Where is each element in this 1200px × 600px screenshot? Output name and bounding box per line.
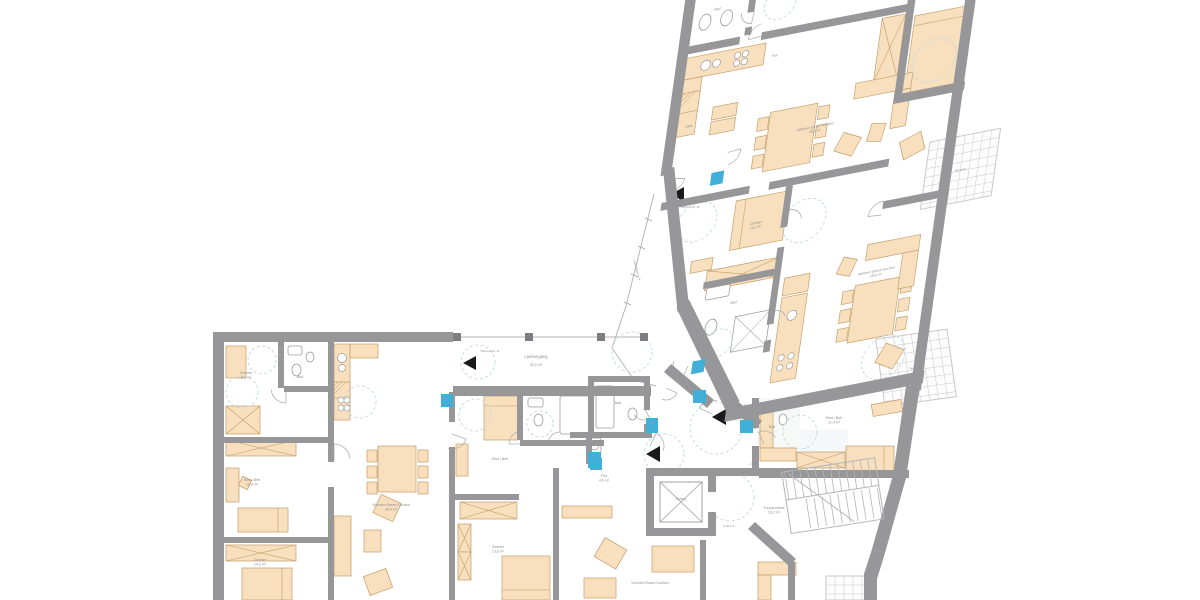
svg-text:Wohnung Nr. 14: Wohnung Nr. 14: [655, 467, 674, 471]
wall: [700, 540, 706, 600]
label: Wohnung Nr. 14: [655, 467, 674, 471]
cabinet: [760, 448, 796, 461]
corridor-post: [525, 333, 533, 341]
wall: [864, 574, 877, 600]
desk: [652, 546, 694, 572]
svg-text:+ 5.74: + 5.74: [749, 462, 758, 466]
chair: [836, 327, 849, 342]
toilet: [306, 352, 314, 362]
chair: [897, 297, 910, 312]
wall: [553, 468, 559, 600]
sink-basin: [338, 354, 347, 363]
stove-burner: [338, 397, 344, 403]
dishwasher: [334, 382, 350, 398]
svg-text:Zimmer13,6 m²: Zimmer13,6 m²: [492, 545, 505, 553]
wall: [328, 487, 334, 600]
svg-text:Zimmer14,2 m²: Zimmer14,2 m²: [254, 558, 267, 566]
chair: [367, 482, 377, 494]
cabinet: [760, 410, 773, 448]
corridor-post: [453, 333, 461, 341]
chair: [367, 466, 377, 478]
floor-plan-page: Zimmer8,2 m²BadKind / Bett12,8 m²Zimmer1…: [0, 0, 1200, 600]
blue: [646, 418, 658, 433]
wall: [328, 392, 334, 462]
toilet: [628, 408, 637, 420]
wall: [224, 537, 330, 543]
wall: [328, 342, 334, 392]
chair: [754, 135, 767, 150]
chair: [812, 142, 825, 157]
bed: [484, 396, 518, 440]
wall: [284, 386, 330, 392]
wall: [453, 386, 651, 396]
chair: [367, 450, 377, 462]
blue: [693, 390, 706, 403]
sink: [288, 346, 302, 355]
svg-text:Bad: Bad: [615, 401, 621, 405]
label: Bad: [297, 375, 303, 379]
bed: [242, 568, 292, 600]
floor-plan-drawing: Zimmer8,2 m²BadKind / Bett12,8 m²Zimmer1…: [0, 0, 1200, 600]
wall: [455, 494, 519, 500]
label: Bad: [769, 425, 775, 429]
chair: [418, 466, 428, 478]
svg-text:Kind / Bett: Kind / Bett: [492, 457, 509, 461]
label: Kind / Bett12,8 m²: [244, 478, 261, 486]
wall: [788, 562, 795, 600]
blue: [441, 394, 453, 407]
chair: [838, 309, 851, 324]
wall: [449, 447, 455, 600]
label: Aufzug: [676, 497, 686, 501]
coffee-table: [364, 530, 381, 552]
label: Kind / Bett: [492, 457, 509, 461]
svg-text:Kind / Bett11,4 m²: Kind / Bett11,4 m²: [826, 416, 843, 424]
label: + 5.74: [749, 462, 758, 466]
cabinet: [458, 524, 471, 552]
label: Wohnen Essen Kochen: [631, 581, 669, 585]
wall: [517, 392, 523, 440]
wall: [588, 376, 650, 382]
toilet: [534, 414, 543, 426]
label: Bad: [615, 401, 621, 405]
sink: [528, 398, 543, 407]
wall: [224, 437, 330, 443]
wardrobe: [460, 502, 517, 519]
stove-burner: [338, 405, 344, 411]
chair: [757, 117, 770, 132]
wall: [213, 332, 453, 342]
wrect: [706, 492, 716, 512]
label: Kind / Bett11,4 m²: [826, 416, 843, 424]
label: Zimmer8,2 m²: [240, 371, 253, 379]
label: Zimmer13,6 m²: [492, 545, 505, 553]
chair: [841, 290, 854, 305]
kitchen-counter: [350, 344, 378, 358]
chair: [751, 154, 764, 169]
wall: [644, 382, 650, 410]
svg-text:Laubengang: Laubengang: [524, 354, 548, 359]
sofa: [334, 516, 351, 576]
dining-table: [762, 103, 817, 172]
svg-text:Aufzug: Aufzug: [676, 497, 686, 501]
svg-text:F 90 A-S: F 90 A-S: [724, 524, 735, 528]
svg-text:Wohnung Nr. 13: Wohnung Nr. 13: [481, 349, 500, 353]
label: F 90 A-S: [724, 524, 735, 528]
label: Laubengang: [524, 354, 548, 359]
svg-text:Bad: Bad: [769, 425, 775, 429]
coffee-table: [584, 578, 616, 598]
desk: [226, 468, 239, 502]
sideboard: [562, 506, 612, 518]
corridor-post: [640, 333, 648, 341]
wall: [570, 432, 652, 438]
svg-text:32,6 m²: 32,6 m²: [530, 363, 543, 367]
chair: [418, 482, 428, 494]
wall: [744, 26, 752, 35]
wall: [278, 342, 284, 388]
label: Zimmer14,2 m²: [254, 558, 267, 566]
svg-text:Bad: Bad: [297, 375, 303, 379]
sink-basin: [339, 365, 346, 372]
label: 32,6 m²: [530, 363, 543, 367]
bed: [502, 556, 550, 600]
chair: [418, 450, 428, 462]
desk: [456, 444, 468, 476]
label: Wohnung Nr. 13: [481, 349, 500, 353]
wall: [213, 337, 224, 600]
wall: [588, 382, 594, 434]
svg-text:Zimmer8,2 m²: Zimmer8,2 m²: [240, 371, 253, 379]
blue: [740, 420, 753, 433]
chair: [817, 105, 830, 120]
stove-burner: [344, 397, 350, 403]
kitchen-counter: [758, 575, 771, 600]
svg-text:Kind / Bett12,8 m²: Kind / Bett12,8 m²: [244, 478, 261, 486]
dining-table: [847, 277, 900, 343]
cabinet: [458, 552, 471, 580]
chair: [895, 316, 908, 331]
corridor-post: [597, 333, 605, 341]
wardrobe: [226, 406, 260, 434]
svg-text:Wohnen Essen Kochen: Wohnen Essen Kochen: [631, 581, 669, 585]
dining-table: [378, 446, 416, 492]
bathtub: [560, 396, 590, 434]
blue: [590, 458, 602, 470]
bed: [238, 508, 288, 532]
